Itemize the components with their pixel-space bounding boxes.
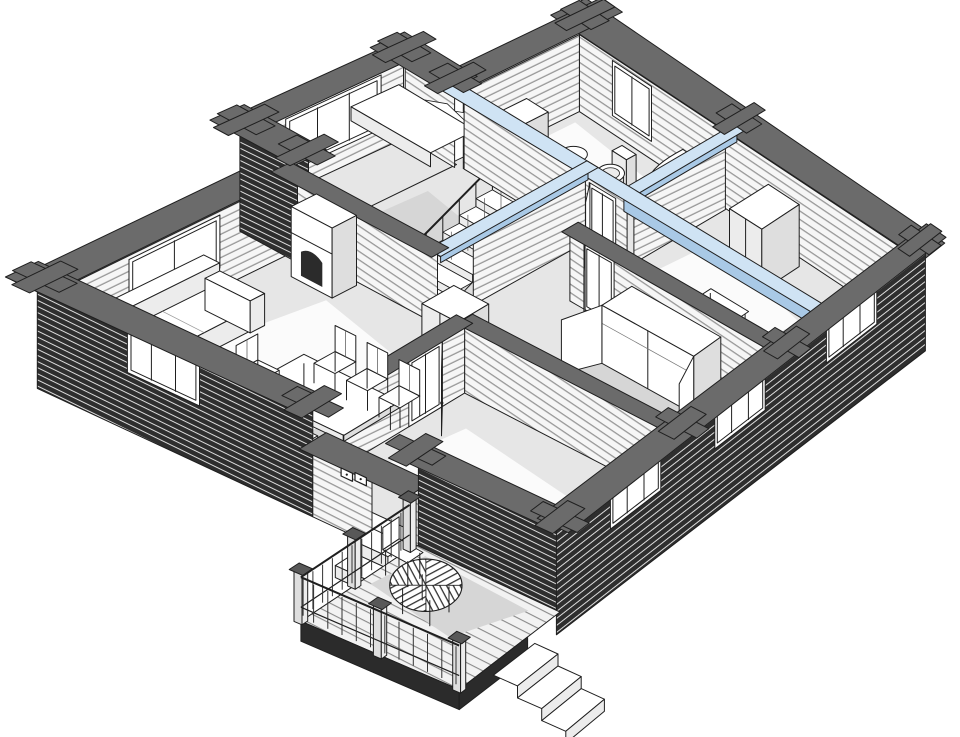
side xyxy=(461,639,466,693)
front xyxy=(453,640,461,693)
railing-post xyxy=(403,495,416,552)
front xyxy=(294,571,302,624)
side xyxy=(250,294,264,333)
post-cap xyxy=(289,563,312,575)
door-leaf xyxy=(442,342,443,436)
floorplan-render[interactable] xyxy=(0,0,960,737)
side xyxy=(332,215,356,298)
switch-dot xyxy=(346,474,348,476)
switch-dot xyxy=(360,478,362,480)
side xyxy=(355,536,361,590)
door-handle xyxy=(440,401,443,404)
front xyxy=(373,606,381,659)
side xyxy=(410,499,416,553)
floorplan-canvas[interactable] xyxy=(0,0,960,737)
